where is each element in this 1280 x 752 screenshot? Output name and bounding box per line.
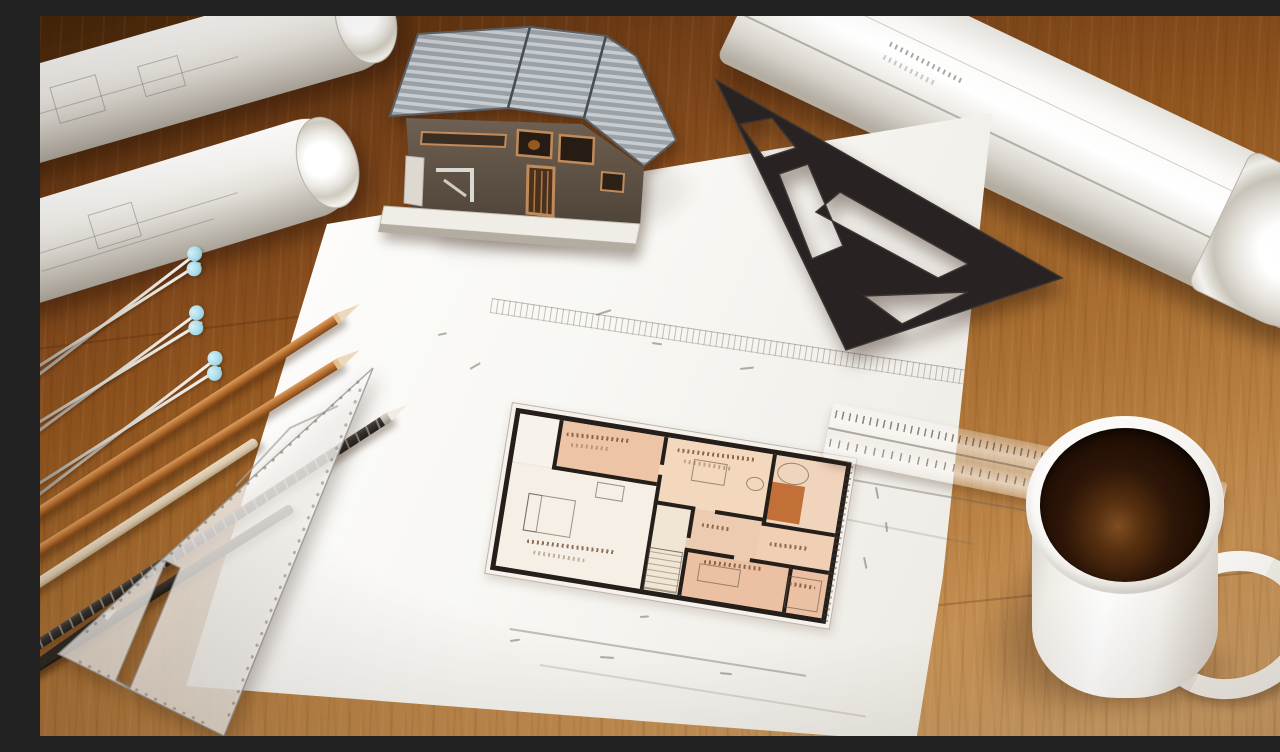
set-square-black bbox=[640, 36, 1100, 366]
house-door bbox=[527, 166, 554, 216]
plan-bed-2 bbox=[784, 575, 823, 612]
blueprint-sketch-box bbox=[137, 55, 186, 97]
blueprint-sketch-box bbox=[49, 74, 106, 124]
coffee-surface bbox=[1040, 428, 1210, 582]
desk-photo: Top-down photo of an architect's wooden … bbox=[40, 16, 1280, 736]
plan-stairs bbox=[643, 547, 683, 594]
house-model bbox=[378, 18, 678, 258]
triangle-ruler-clear bbox=[40, 356, 400, 736]
